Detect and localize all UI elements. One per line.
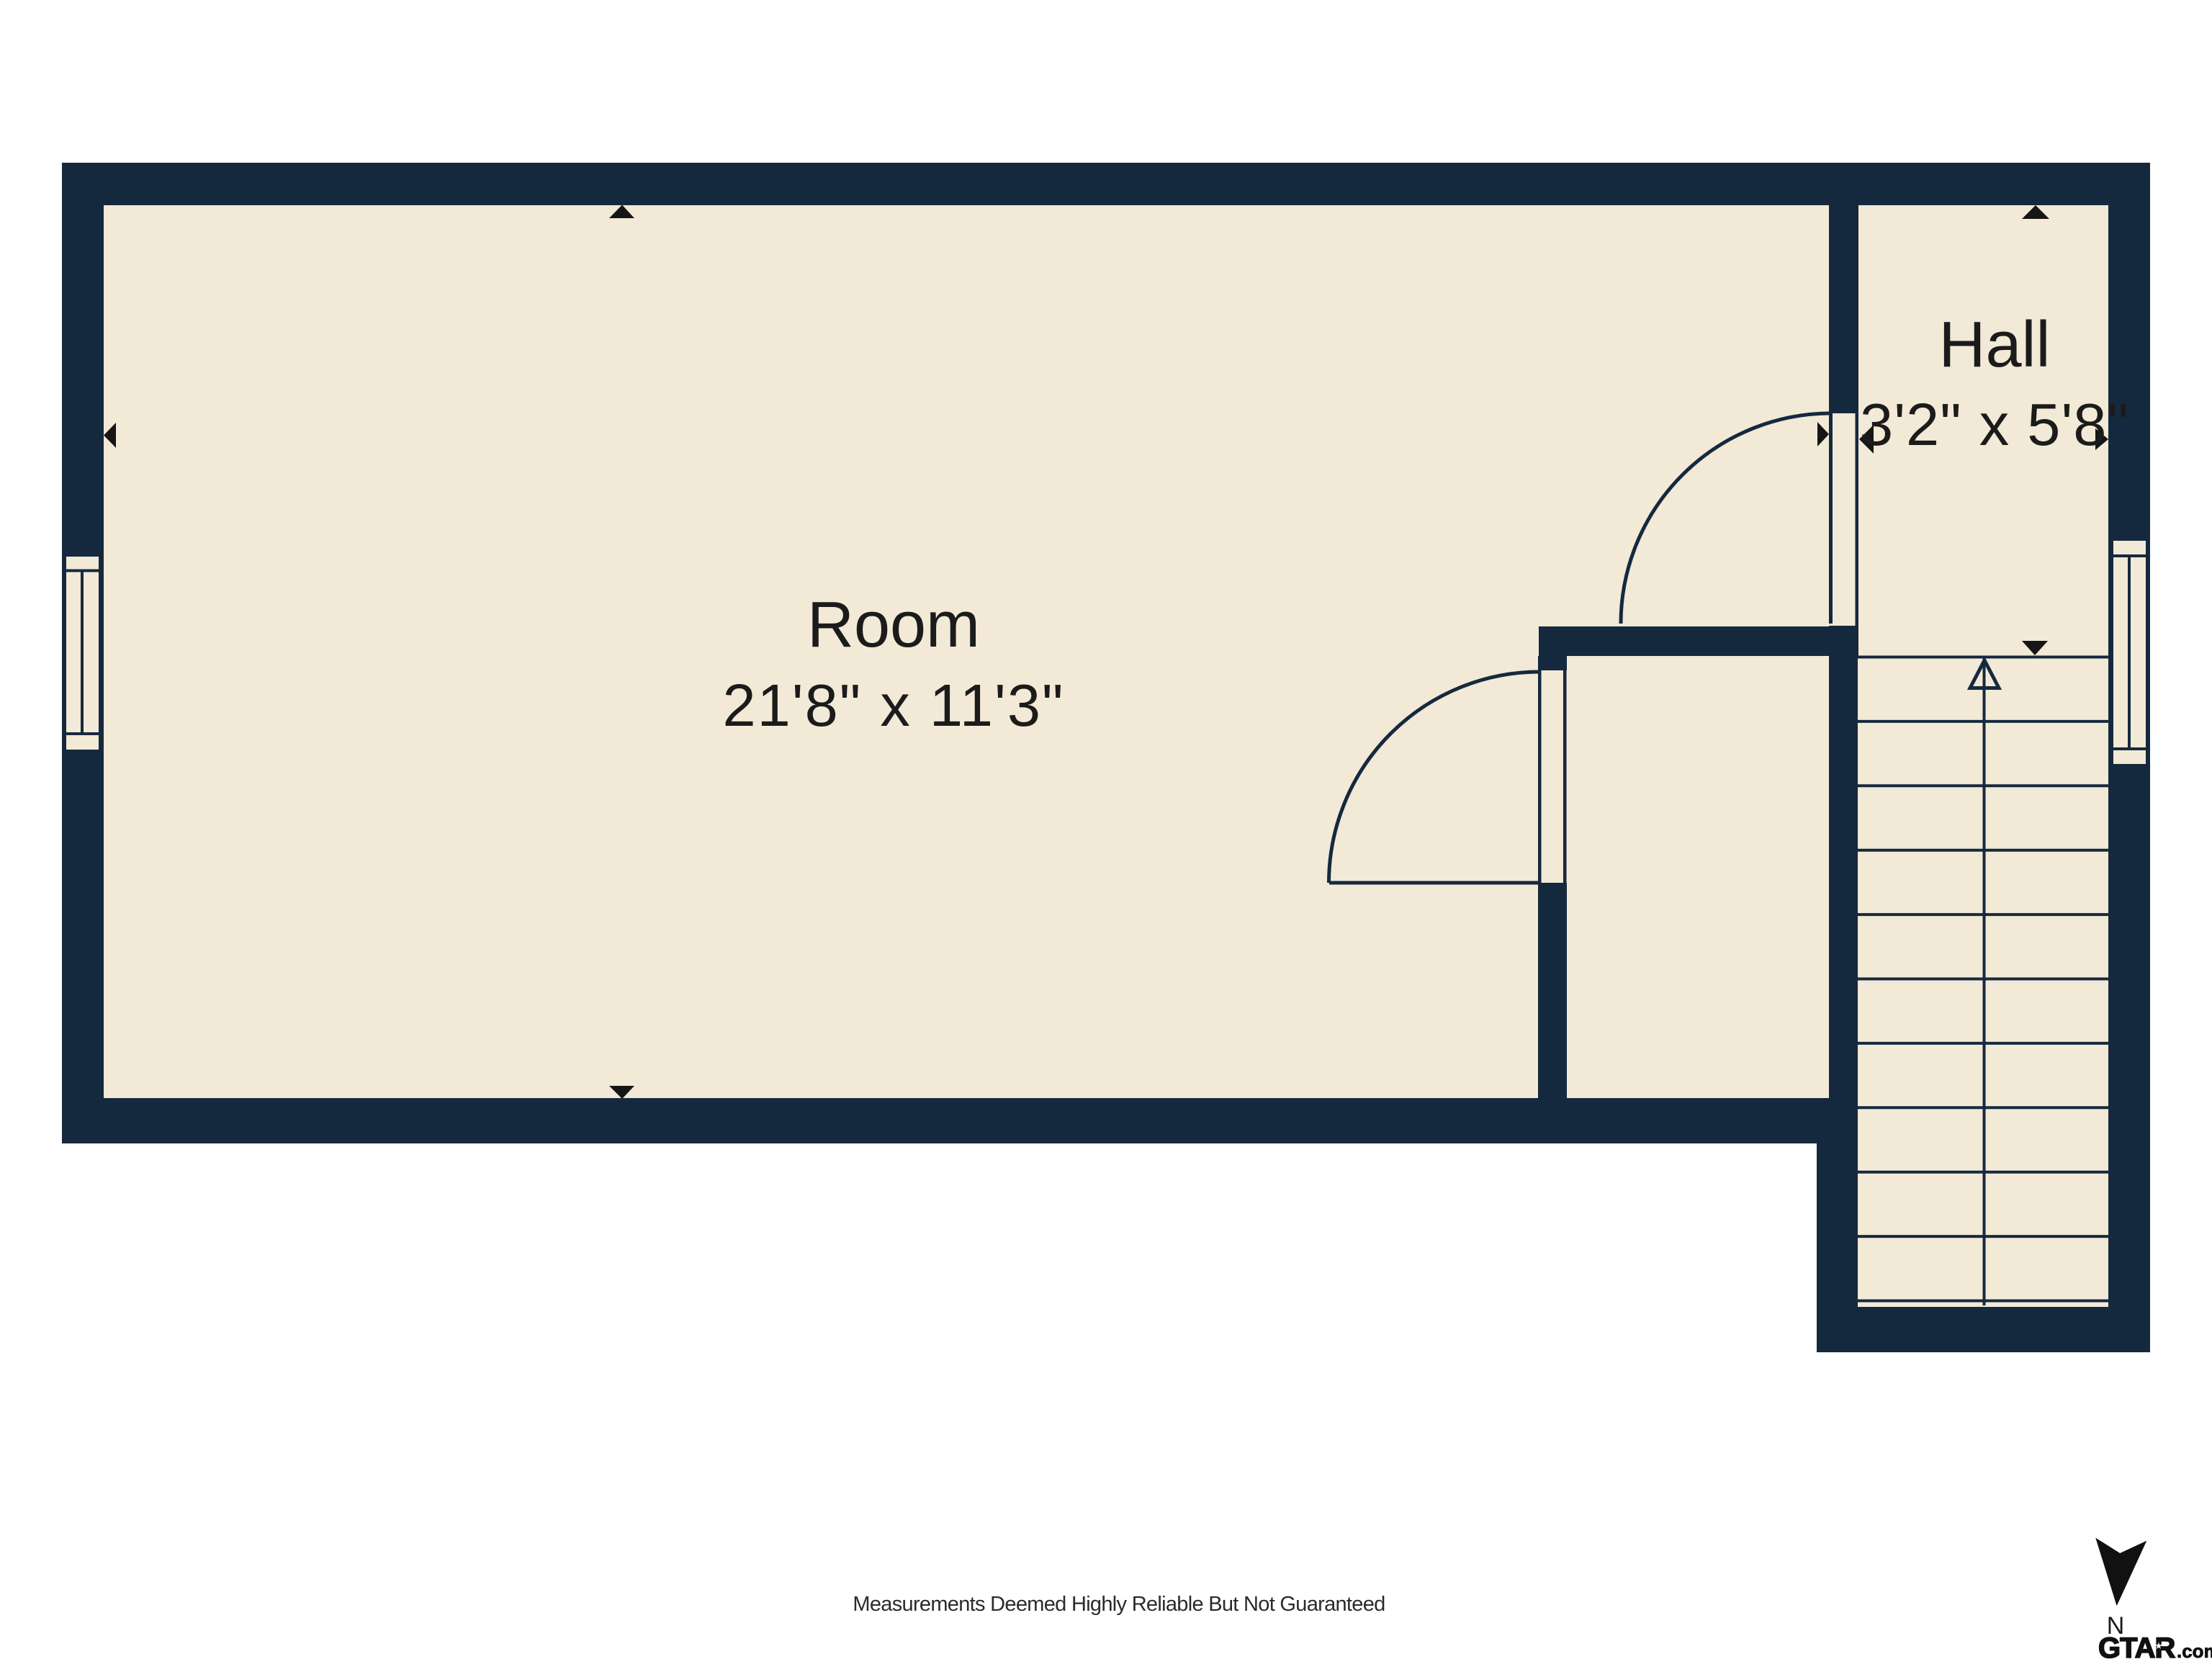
svg-text:Hall: Hall [1938,309,2050,381]
svg-text:21'8" x 11'3": 21'8" x 11'3" [722,672,1064,739]
svg-text:Room: Room [807,589,980,661]
svg-text:3'2" x 5'8": 3'2" x 5'8" [1860,391,2129,458]
svg-text:Measurements Deemed Highly Rel: Measurements Deemed Highly Reliable But … [853,1593,1385,1616]
svg-text:★: ★ [2154,1640,2163,1651]
svg-text:GTAR: GTAR [2098,1632,2175,1659]
svg-text:.com: .com [2177,1640,2212,1659]
